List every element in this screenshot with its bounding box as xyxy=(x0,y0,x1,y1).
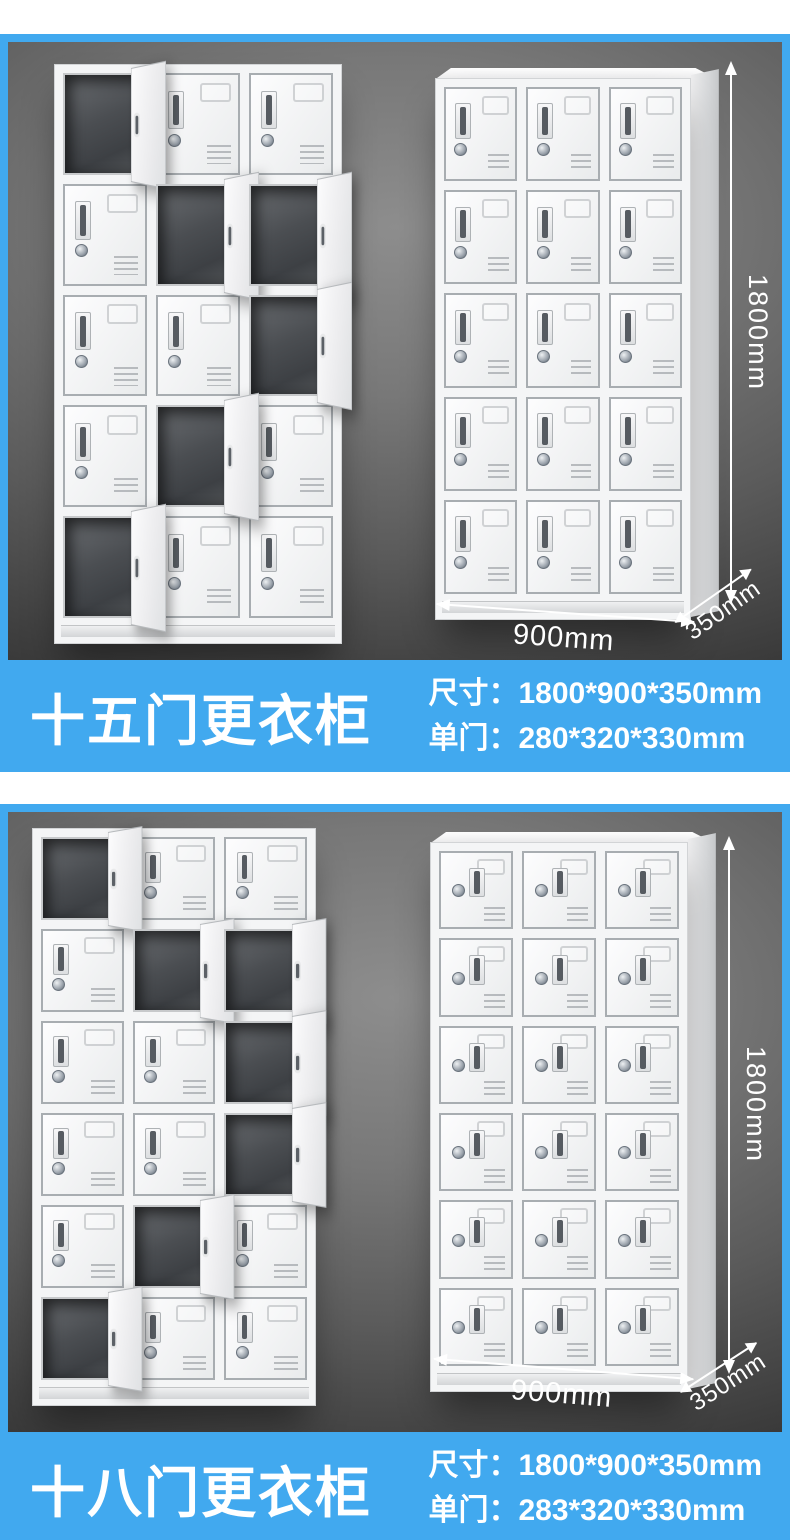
open-door-leaf xyxy=(131,61,166,190)
door-handle-icon xyxy=(620,310,636,345)
locker-15-open-view xyxy=(54,64,342,644)
door-handle-icon xyxy=(145,852,161,883)
locker-door-open xyxy=(222,1111,309,1198)
door-handle-icon xyxy=(635,955,651,985)
locker-door xyxy=(222,835,309,922)
door-vents xyxy=(567,1343,588,1357)
label-holder xyxy=(107,304,138,324)
door-vents xyxy=(488,464,509,481)
locker-door-face xyxy=(605,851,679,929)
locker-door-face xyxy=(156,295,240,397)
keyhole-lock-icon xyxy=(454,556,467,569)
door-handle-icon xyxy=(469,1130,485,1160)
locker-door-face xyxy=(609,190,682,284)
keyhole-lock-icon xyxy=(452,884,465,897)
locker-door xyxy=(520,936,598,1018)
spec-block-18: 尺寸：1800*900*350mm 单门：283*320*330mm xyxy=(428,1443,762,1533)
locker-door xyxy=(520,1286,598,1368)
keyhole-lock-icon xyxy=(452,1146,465,1159)
door-handle-icon xyxy=(53,1220,69,1251)
label-holder xyxy=(482,509,510,527)
door-vents xyxy=(567,1081,588,1095)
door-handle-icon xyxy=(261,534,277,572)
door-vents xyxy=(567,1169,588,1183)
door-vents xyxy=(91,1172,115,1187)
locker-door xyxy=(437,936,515,1018)
keyhole-lock-icon xyxy=(618,972,631,985)
locker-door-face xyxy=(444,87,517,181)
keyhole-lock-icon xyxy=(537,246,550,259)
keyhole-lock-icon xyxy=(535,884,548,897)
locker-door-face xyxy=(605,1026,679,1104)
label-holder xyxy=(293,83,324,103)
label-holder xyxy=(646,509,674,527)
locker-door-face xyxy=(249,405,333,507)
door-vents xyxy=(567,994,588,1008)
door-handle-icon xyxy=(75,312,91,350)
label-holder xyxy=(646,406,674,424)
locker-door-face xyxy=(41,1021,124,1104)
door-handle-icon xyxy=(455,516,471,551)
label-holder xyxy=(84,937,115,954)
door-handle-icon xyxy=(635,868,651,898)
locker-door-face xyxy=(156,516,240,618)
door-vents xyxy=(484,907,505,921)
label-holder xyxy=(267,845,298,862)
locker-door-face xyxy=(522,1200,596,1278)
open-door-leaf xyxy=(292,918,326,1024)
door-handle-icon xyxy=(537,516,553,551)
door-vents xyxy=(91,1264,115,1279)
door-handle-icon xyxy=(552,1130,568,1160)
keyhole-lock-icon xyxy=(618,1321,631,1334)
door-handle-icon xyxy=(75,201,91,239)
locker-door-face xyxy=(444,397,517,491)
locker-door-face xyxy=(156,73,240,175)
locker-door-face xyxy=(63,405,147,507)
locker-door-face xyxy=(249,516,333,618)
keyhole-lock-icon xyxy=(618,884,631,897)
height-dimension-label: 1800mm xyxy=(742,274,773,391)
locker-door xyxy=(603,1198,681,1280)
keyhole-lock-icon xyxy=(454,350,467,363)
locker-door xyxy=(524,188,601,286)
locker-door xyxy=(154,293,242,399)
keyhole-lock-icon xyxy=(52,1070,65,1083)
spec-door-value: 280*320*330mm xyxy=(518,722,745,755)
door-handle-icon xyxy=(261,91,277,129)
spec-size-value: 1800*900*350mm xyxy=(518,1449,762,1482)
locker-door xyxy=(39,1111,126,1198)
locker-door-open xyxy=(131,1203,218,1290)
label-holder xyxy=(564,303,592,321)
open-door-leaf xyxy=(224,393,259,522)
door-vents xyxy=(567,907,588,921)
open-door-leaf xyxy=(317,282,352,411)
door-vents xyxy=(183,1172,207,1187)
door-handle-icon xyxy=(537,207,553,242)
door-handle-icon xyxy=(145,1312,161,1343)
locker-18-front-view xyxy=(430,842,688,1392)
label-holder xyxy=(564,96,592,114)
label-holder xyxy=(482,96,510,114)
locker-door-face xyxy=(526,293,599,387)
locker-18-closed xyxy=(430,842,688,1392)
locker-door-face xyxy=(522,1288,596,1366)
locker-door-face xyxy=(133,1297,216,1380)
locker-door-open xyxy=(247,293,335,399)
keyhole-lock-icon xyxy=(261,577,274,590)
locker-door-open xyxy=(61,514,149,620)
locker-door-face xyxy=(439,1200,513,1278)
height-arrow xyxy=(728,850,730,1360)
keyhole-lock-icon xyxy=(535,1234,548,1247)
door-handle-icon xyxy=(552,1043,568,1073)
door-vents xyxy=(488,154,509,171)
door-vents xyxy=(653,257,674,274)
keyhole-lock-icon xyxy=(452,1321,465,1334)
locker-door xyxy=(603,1024,681,1106)
door-vents xyxy=(488,257,509,274)
label-holder xyxy=(200,83,231,103)
keyhole-lock-icon xyxy=(454,453,467,466)
door-vents xyxy=(650,1081,671,1095)
height-dimension: 1800mm xyxy=(730,75,773,590)
door-handle-icon xyxy=(552,1217,568,1247)
locker-door-face xyxy=(133,1113,216,1196)
locker-door xyxy=(442,498,519,596)
section-fifteen-door: 1800mm 900mm 350mm 十五门更衣柜 尺寸：1800*900*35… xyxy=(0,34,790,772)
locker-15-front-view xyxy=(435,78,691,620)
door-handle-icon xyxy=(53,1128,69,1159)
label-holder xyxy=(200,526,231,546)
locker-door xyxy=(524,291,601,389)
locker-base xyxy=(61,625,335,637)
locker-door xyxy=(131,835,218,922)
locker-door xyxy=(437,1024,515,1106)
keyhole-lock-icon xyxy=(75,244,88,257)
keyhole-lock-icon xyxy=(168,577,181,590)
keyhole-lock-icon xyxy=(168,355,181,368)
spec-door-row: 单门：283*320*330mm xyxy=(428,1488,762,1533)
locker-door-face xyxy=(249,73,333,175)
locker-door-face xyxy=(444,293,517,387)
door-vents xyxy=(571,464,592,481)
open-door-leaf xyxy=(108,826,142,932)
label-holder xyxy=(482,303,510,321)
open-door-leaf xyxy=(292,1102,326,1208)
label-holder xyxy=(84,1213,115,1230)
locker-door xyxy=(524,85,601,183)
door-handle-icon xyxy=(237,852,253,883)
locker-door-face xyxy=(522,1113,596,1191)
locker-door xyxy=(442,291,519,389)
label-holder xyxy=(176,1029,207,1046)
open-door-leaf xyxy=(131,504,166,633)
door-vents xyxy=(650,994,671,1008)
door-vents xyxy=(653,360,674,377)
locker-door-face xyxy=(224,837,307,920)
locker-door xyxy=(222,1295,309,1382)
door-vents xyxy=(183,1356,207,1371)
locker-door-open xyxy=(154,403,242,509)
door-handle-icon xyxy=(469,1305,485,1335)
locker-door xyxy=(437,849,515,931)
locker-door xyxy=(39,1203,126,1290)
keyhole-lock-icon xyxy=(535,1146,548,1159)
locker-door xyxy=(39,1019,126,1106)
open-door-leaf xyxy=(292,1010,326,1116)
label-holder xyxy=(564,406,592,424)
keyhole-lock-icon xyxy=(454,246,467,259)
door-handle-icon xyxy=(537,103,553,138)
door-vents xyxy=(91,988,115,1003)
keyhole-lock-icon xyxy=(535,972,548,985)
locker-door-open xyxy=(154,182,242,288)
locker-door xyxy=(131,1295,218,1382)
door-vents xyxy=(207,367,231,386)
door-vents xyxy=(114,478,138,497)
door-handle-icon xyxy=(635,1130,651,1160)
door-handle-icon xyxy=(455,103,471,138)
label-holder xyxy=(293,415,324,435)
door-handle-icon xyxy=(53,1036,69,1067)
keyhole-lock-icon xyxy=(537,143,550,156)
label-holder xyxy=(176,845,207,862)
spec-size-row: 尺寸：1800*900*350mm xyxy=(428,671,762,716)
locker-door xyxy=(442,188,519,286)
door-vents xyxy=(114,256,138,275)
locker-door xyxy=(520,1024,598,1106)
label-holder xyxy=(107,415,138,435)
keyhole-lock-icon xyxy=(537,556,550,569)
door-vents xyxy=(274,1264,298,1279)
locker-door xyxy=(154,514,242,620)
spec-size-value: 1800*900*350mm xyxy=(518,677,762,710)
door-vents xyxy=(653,567,674,584)
door-vents xyxy=(183,1080,207,1095)
locker-door xyxy=(61,293,149,399)
locker-door-face xyxy=(224,1297,307,1380)
door-vents xyxy=(274,1356,298,1371)
spec-size-label: 尺寸： xyxy=(428,677,518,710)
label-holder xyxy=(267,1213,298,1230)
keyhole-lock-icon xyxy=(452,972,465,985)
label-holder xyxy=(646,96,674,114)
locker-door-face xyxy=(63,295,147,397)
door-handle-icon xyxy=(469,955,485,985)
keyhole-lock-icon xyxy=(619,453,632,466)
keyhole-lock-icon xyxy=(144,1070,157,1083)
spec-door-label: 单门： xyxy=(428,1494,518,1527)
locker-door xyxy=(39,927,126,1014)
door-vents xyxy=(207,589,231,608)
label-holder xyxy=(176,1121,207,1138)
door-vents xyxy=(207,145,231,164)
locker-door xyxy=(524,498,601,596)
locker-door xyxy=(603,936,681,1018)
door-vents xyxy=(484,1256,505,1270)
door-vents xyxy=(114,367,138,386)
door-vents xyxy=(484,1169,505,1183)
locker-door-open xyxy=(222,927,309,1014)
spec-size-row: 尺寸：1800*900*350mm xyxy=(428,1443,762,1488)
banner-18: 十八门更衣柜 尺寸：1800*900*350mm 单门：283*320*330m… xyxy=(8,1432,782,1540)
keyhole-lock-icon xyxy=(236,886,249,899)
locker-door-face xyxy=(439,1113,513,1191)
door-vents xyxy=(91,1080,115,1095)
locker-door xyxy=(222,1203,309,1290)
door-vents xyxy=(571,567,592,584)
banner-15: 十五门更衣柜 尺寸：1800*900*350mm 单门：280*320*330m… xyxy=(8,660,782,772)
keyhole-lock-icon xyxy=(454,143,467,156)
locker-18-open-view xyxy=(32,828,316,1406)
keyhole-lock-icon xyxy=(52,978,65,991)
locker-door xyxy=(520,1111,598,1193)
label-holder xyxy=(84,1029,115,1046)
label-holder xyxy=(107,194,138,214)
label-holder xyxy=(564,199,592,217)
keyhole-lock-icon xyxy=(619,143,632,156)
door-vents xyxy=(484,1081,505,1095)
door-handle-icon xyxy=(455,207,471,242)
keyhole-lock-icon xyxy=(236,1346,249,1359)
keyhole-lock-icon xyxy=(535,1321,548,1334)
locker-door-face xyxy=(605,1200,679,1278)
open-door-leaf xyxy=(108,1286,142,1392)
locker-door-open xyxy=(247,182,335,288)
locker-door-face xyxy=(609,500,682,594)
spec-size-label: 尺寸： xyxy=(428,1449,518,1482)
locker-door xyxy=(131,1111,218,1198)
door-handle-icon xyxy=(620,516,636,551)
keyhole-lock-icon xyxy=(261,134,274,147)
door-handle-icon xyxy=(145,1128,161,1159)
keyhole-lock-icon xyxy=(144,1346,157,1359)
height-dimension: 1800mm xyxy=(728,850,771,1360)
label-holder xyxy=(176,1305,207,1322)
label-holder xyxy=(482,406,510,424)
photo-area-15: 1800mm 900mm 350mm xyxy=(8,42,782,660)
door-vents xyxy=(571,360,592,377)
locker-door xyxy=(131,1019,218,1106)
locker-door-open xyxy=(131,927,218,1014)
spec-block-15: 尺寸：1800*900*350mm 单门：280*320*330mm xyxy=(428,671,762,761)
keyhole-lock-icon xyxy=(618,1234,631,1247)
door-handle-icon xyxy=(635,1305,651,1335)
locker-15-closed xyxy=(435,78,691,620)
spec-door-row: 单门：280*320*330mm xyxy=(428,716,762,761)
locker-door-face xyxy=(444,190,517,284)
locker-door xyxy=(603,849,681,931)
locker-door xyxy=(607,395,684,493)
locker-door-face xyxy=(439,938,513,1016)
door-vents xyxy=(653,154,674,171)
locker-door xyxy=(603,1111,681,1193)
door-handle-icon xyxy=(455,310,471,345)
locker-door xyxy=(437,1111,515,1193)
locker-top-face xyxy=(437,68,715,78)
keyhole-lock-icon xyxy=(75,466,88,479)
height-arrow xyxy=(730,75,732,590)
door-handle-icon xyxy=(237,1220,253,1251)
door-handle-icon xyxy=(537,310,553,345)
door-handle-icon xyxy=(620,207,636,242)
label-holder xyxy=(482,199,510,217)
keyhole-lock-icon xyxy=(537,350,550,363)
keyhole-lock-icon xyxy=(144,1162,157,1175)
locker-door-face xyxy=(609,87,682,181)
door-handle-icon xyxy=(537,413,553,448)
door-handle-icon xyxy=(635,1217,651,1247)
locker-door-face xyxy=(133,1021,216,1104)
door-vents xyxy=(650,1343,671,1357)
locker-door-face xyxy=(133,837,216,920)
keyhole-lock-icon xyxy=(52,1254,65,1267)
door-handle-icon xyxy=(168,534,184,572)
door-handle-icon xyxy=(53,944,69,975)
spec-door-label: 单门： xyxy=(428,722,518,755)
locker-door-face xyxy=(609,397,682,491)
locker-door xyxy=(442,395,519,493)
locker-door-face xyxy=(522,938,596,1016)
locker-door-face xyxy=(224,1205,307,1288)
locker-door xyxy=(524,395,601,493)
locker-side-face xyxy=(688,833,716,1389)
keyhole-lock-icon xyxy=(618,1059,631,1072)
label-holder xyxy=(200,304,231,324)
door-handle-icon xyxy=(635,1043,651,1073)
locker-door xyxy=(154,71,242,177)
locker-top-face xyxy=(432,832,712,842)
product-title-18: 十八门更衣柜 xyxy=(30,1448,372,1528)
door-vents xyxy=(300,589,324,608)
door-vents xyxy=(571,257,592,274)
door-handle-icon xyxy=(620,413,636,448)
locker-door-face xyxy=(439,851,513,929)
door-handle-icon xyxy=(237,1312,253,1343)
door-handle-icon xyxy=(469,1217,485,1247)
label-holder xyxy=(564,509,592,527)
door-vents xyxy=(183,896,207,911)
keyhole-lock-icon xyxy=(168,134,181,147)
label-holder xyxy=(84,1121,115,1138)
spec-door-value: 283*320*330mm xyxy=(518,1494,745,1527)
locker-door-face xyxy=(609,293,682,387)
locker-door xyxy=(247,403,335,509)
door-vents xyxy=(488,360,509,377)
keyhole-lock-icon xyxy=(452,1234,465,1247)
door-handle-icon xyxy=(620,103,636,138)
door-vents xyxy=(650,1169,671,1183)
locker-door-face xyxy=(605,1288,679,1366)
keyhole-lock-icon xyxy=(537,453,550,466)
door-handle-icon xyxy=(469,868,485,898)
promo-page: 1800mm 900mm 350mm 十五门更衣柜 尺寸：1800*900*35… xyxy=(0,0,790,1540)
door-vents xyxy=(300,478,324,497)
door-vents xyxy=(650,1256,671,1270)
locker-door-open xyxy=(61,71,149,177)
keyhole-lock-icon xyxy=(75,355,88,368)
locker-door xyxy=(437,1198,515,1280)
locker-door xyxy=(607,291,684,389)
locker-door-face xyxy=(444,500,517,594)
door-handle-icon xyxy=(168,91,184,129)
locker-door-face xyxy=(522,1026,596,1104)
locker-door xyxy=(437,1286,515,1368)
height-dimension-label: 1800mm xyxy=(740,1046,771,1163)
keyhole-lock-icon xyxy=(619,556,632,569)
